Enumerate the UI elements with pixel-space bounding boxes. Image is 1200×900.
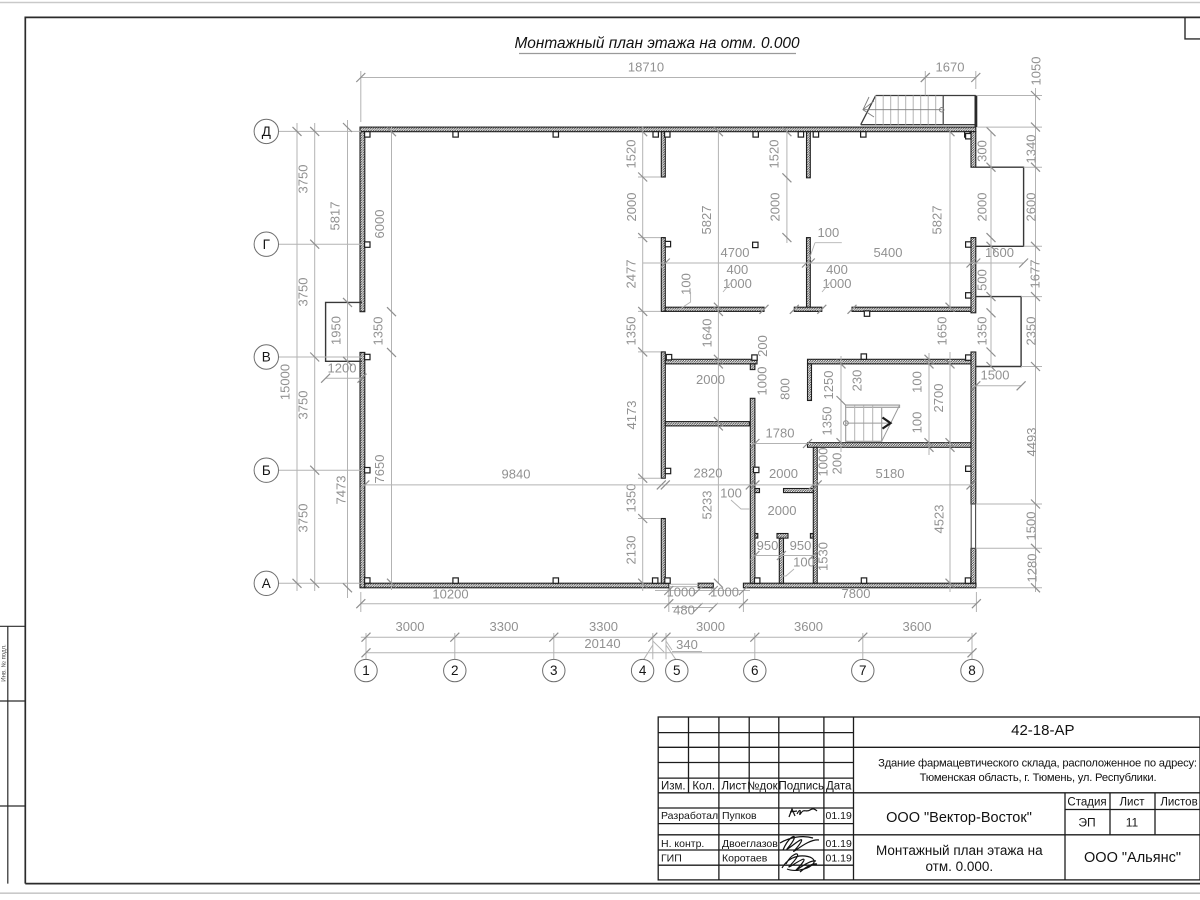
svg-text:Д: Д (262, 124, 271, 139)
svg-text:3750: 3750 (296, 391, 311, 420)
svg-text:800: 800 (778, 378, 793, 400)
svg-text:4523: 4523 (932, 505, 947, 534)
svg-text:15000: 15000 (278, 364, 293, 400)
svg-text:Г: Г (263, 237, 271, 252)
svg-text:1530: 1530 (816, 542, 831, 571)
svg-text:1250: 1250 (821, 371, 836, 400)
svg-text:1: 1 (362, 663, 370, 678)
svg-text:5827: 5827 (930, 206, 945, 235)
svg-text:3000: 3000 (396, 619, 425, 634)
svg-text:Н. контр.: Н. контр. (661, 838, 704, 850)
svg-text:1000: 1000 (710, 585, 739, 600)
svg-text:ООО "Вектор-Восток": ООО "Вектор-Восток" (886, 810, 1032, 826)
svg-text:300: 300 (975, 140, 990, 162)
svg-text:Двоеглазов: Двоеглазов (722, 838, 778, 850)
svg-text:1000: 1000 (823, 276, 852, 291)
svg-text:5233: 5233 (700, 491, 715, 520)
svg-text:Изм.: Изм. (661, 781, 686, 793)
svg-text:8: 8 (968, 663, 976, 678)
svg-text:2820: 2820 (694, 466, 723, 481)
svg-text:1520: 1520 (767, 140, 782, 169)
svg-text:Кол.: Кол. (692, 781, 715, 793)
svg-text:1520: 1520 (624, 140, 639, 169)
svg-text:1600: 1600 (985, 245, 1014, 260)
svg-text:1000: 1000 (723, 276, 752, 291)
svg-text:1500: 1500 (981, 368, 1010, 383)
svg-text:6000: 6000 (372, 210, 387, 239)
svg-text:Коротаев: Коротаев (722, 853, 768, 865)
svg-text:7800: 7800 (842, 586, 871, 601)
svg-text:2700: 2700 (931, 384, 946, 413)
svg-text:3300: 3300 (490, 619, 519, 634)
svg-text:2130: 2130 (624, 536, 639, 565)
svg-text:1650: 1650 (935, 317, 950, 346)
svg-text:01.19: 01.19 (826, 810, 852, 822)
svg-text:6: 6 (751, 663, 759, 678)
svg-text:отм. 0.000.: отм. 0.000. (925, 859, 993, 874)
svg-text:2600: 2600 (1024, 193, 1039, 222)
svg-text:ООО "Альянс": ООО "Альянс" (1084, 850, 1181, 866)
svg-text:5: 5 (673, 663, 681, 678)
svg-text:1000: 1000 (816, 448, 831, 477)
svg-text:100: 100 (910, 412, 925, 434)
svg-text:4700: 4700 (721, 245, 750, 260)
svg-text:2000: 2000 (769, 466, 798, 481)
svg-text:Лист: Лист (722, 781, 748, 793)
svg-text:Тюменская область, г. Тюмень,: Тюменская область, г. Тюмень, ул. Респуб… (920, 772, 1157, 784)
svg-text:4493: 4493 (1024, 428, 1039, 457)
svg-text:100: 100 (679, 273, 694, 295)
svg-text:Инв. № подл.: Инв. № подл. (1, 644, 8, 682)
svg-text:Листов: Листов (1160, 797, 1197, 809)
svg-text:1640: 1640 (700, 319, 715, 348)
svg-text:Монтажный план этажа на отм. 0: Монтажный план этажа на отм. 0.000 (514, 35, 799, 52)
svg-text:1670: 1670 (936, 60, 965, 75)
svg-text:1350: 1350 (820, 407, 835, 436)
svg-text:5400: 5400 (874, 245, 903, 260)
svg-text:1000: 1000 (755, 367, 770, 396)
svg-text:Монтажный план этажа на: Монтажный план этажа на (876, 843, 1043, 858)
svg-text:Б: Б (262, 463, 271, 478)
svg-text:20140: 20140 (584, 636, 620, 651)
svg-text:1200: 1200 (328, 361, 357, 376)
svg-text:5827: 5827 (699, 206, 714, 235)
svg-text:Здание фармацевтического склад: Здание фармацевтического склада, располо… (878, 758, 1197, 770)
svg-text:4173: 4173 (624, 401, 639, 430)
svg-text:ЭП: ЭП (1078, 816, 1095, 830)
svg-text:3600: 3600 (794, 619, 823, 634)
svg-text:100: 100 (910, 371, 925, 393)
svg-text:3750: 3750 (296, 504, 311, 533)
svg-text:1050: 1050 (1029, 57, 1044, 86)
svg-text:Пупков: Пупков (722, 810, 757, 822)
svg-text:5180: 5180 (876, 466, 905, 481)
svg-text:3000: 3000 (696, 619, 725, 634)
svg-text:3: 3 (550, 663, 558, 678)
svg-text:1350: 1350 (624, 317, 639, 346)
svg-text:№док.: №док. (747, 781, 781, 793)
svg-text:3750: 3750 (296, 278, 311, 307)
svg-text:1280: 1280 (1025, 554, 1040, 583)
svg-text:2000: 2000 (768, 503, 797, 518)
svg-text:2350: 2350 (1024, 317, 1039, 346)
svg-text:3600: 3600 (903, 619, 932, 634)
svg-text:1950: 1950 (329, 316, 344, 345)
svg-text:400: 400 (826, 262, 848, 277)
svg-text:1350: 1350 (371, 317, 386, 346)
svg-text:11: 11 (1126, 816, 1139, 830)
svg-text:950: 950 (757, 538, 779, 553)
svg-text:01.19: 01.19 (826, 838, 852, 850)
svg-text:1677: 1677 (1028, 260, 1043, 289)
svg-text:01.19: 01.19 (826, 853, 852, 865)
svg-text:100: 100 (793, 555, 815, 570)
svg-text:10200: 10200 (432, 587, 468, 602)
svg-text:В: В (262, 350, 271, 365)
svg-text:7473: 7473 (334, 476, 349, 505)
svg-text:4: 4 (639, 663, 647, 678)
svg-text:2000: 2000 (696, 372, 725, 387)
svg-text:480: 480 (673, 603, 695, 618)
svg-text:200: 200 (830, 453, 845, 475)
svg-text:Дата: Дата (826, 781, 852, 793)
svg-text:1500: 1500 (1024, 512, 1039, 541)
svg-text:400: 400 (727, 262, 749, 277)
svg-text:2477: 2477 (624, 260, 639, 289)
svg-text:100: 100 (818, 225, 840, 240)
svg-text:200: 200 (755, 335, 770, 357)
svg-text:2000: 2000 (975, 193, 990, 222)
svg-text:42-18-АР: 42-18-АР (1011, 722, 1074, 739)
svg-text:18710: 18710 (628, 60, 664, 75)
svg-text:9840: 9840 (502, 467, 531, 482)
svg-text:950: 950 (790, 538, 812, 553)
svg-text:5817: 5817 (328, 202, 343, 231)
svg-text:Разработал: Разработал (661, 810, 718, 822)
svg-text:1350: 1350 (975, 317, 990, 346)
svg-text:100: 100 (720, 486, 742, 501)
svg-text:ГИП: ГИП (661, 853, 682, 865)
svg-text:340: 340 (676, 637, 698, 652)
svg-text:1000: 1000 (667, 585, 696, 600)
svg-text:7650: 7650 (372, 455, 387, 484)
svg-text:230: 230 (850, 370, 865, 392)
svg-text:3300: 3300 (589, 619, 618, 634)
svg-text:2000: 2000 (768, 193, 783, 222)
svg-text:2: 2 (451, 663, 459, 678)
svg-text:3750: 3750 (296, 165, 311, 194)
svg-text:Лист: Лист (1120, 797, 1146, 809)
svg-text:1340: 1340 (1024, 135, 1039, 164)
svg-text:Подпись: Подпись (779, 781, 825, 793)
svg-text:А: А (262, 576, 271, 591)
svg-text:500: 500 (975, 269, 990, 291)
svg-text:1780: 1780 (766, 426, 795, 441)
svg-text:1350: 1350 (624, 484, 639, 513)
svg-text:7: 7 (859, 663, 867, 678)
svg-text:Стадия: Стадия (1067, 797, 1106, 809)
svg-text:2000: 2000 (624, 193, 639, 222)
